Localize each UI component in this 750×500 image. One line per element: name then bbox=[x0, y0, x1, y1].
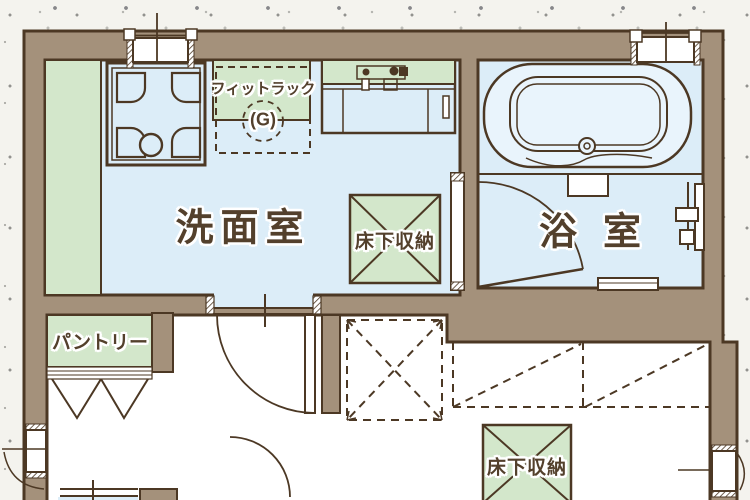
bathtub bbox=[478, 64, 703, 174]
tub-deck-counter bbox=[568, 174, 608, 196]
fitrack-sub-label: (G) bbox=[250, 110, 276, 131]
window-top-left bbox=[124, 13, 197, 68]
washroom-label: 洗面室 bbox=[175, 197, 310, 252]
underfloor-storage-label-2: 床下収納 bbox=[487, 453, 567, 480]
drain-icon bbox=[140, 134, 162, 156]
door-jamb bbox=[313, 296, 321, 314]
fitrack-label: フィットラック bbox=[211, 78, 316, 99]
bathroom-label: 浴室 bbox=[539, 201, 667, 256]
floor-plan: 洗面室 浴室 フィットラック (G) パントリー 床下収納 床下収納 bbox=[0, 0, 750, 500]
tub-drain-icon bbox=[579, 138, 595, 154]
window-top-right bbox=[630, 22, 701, 65]
cabinet-handle bbox=[443, 96, 449, 118]
bath-bench bbox=[598, 278, 658, 290]
wall-stub bbox=[322, 315, 340, 413]
vanity-counter bbox=[322, 60, 455, 133]
pantry-label: パントリー bbox=[52, 328, 148, 355]
washing-machine-pan bbox=[107, 63, 205, 165]
door-leaf bbox=[305, 315, 315, 413]
underfloor-storage-label-1: 床下収納 bbox=[355, 227, 435, 254]
door-pocket bbox=[451, 173, 464, 290]
washroom-cabinet bbox=[45, 60, 101, 295]
door-jamb bbox=[206, 296, 214, 314]
